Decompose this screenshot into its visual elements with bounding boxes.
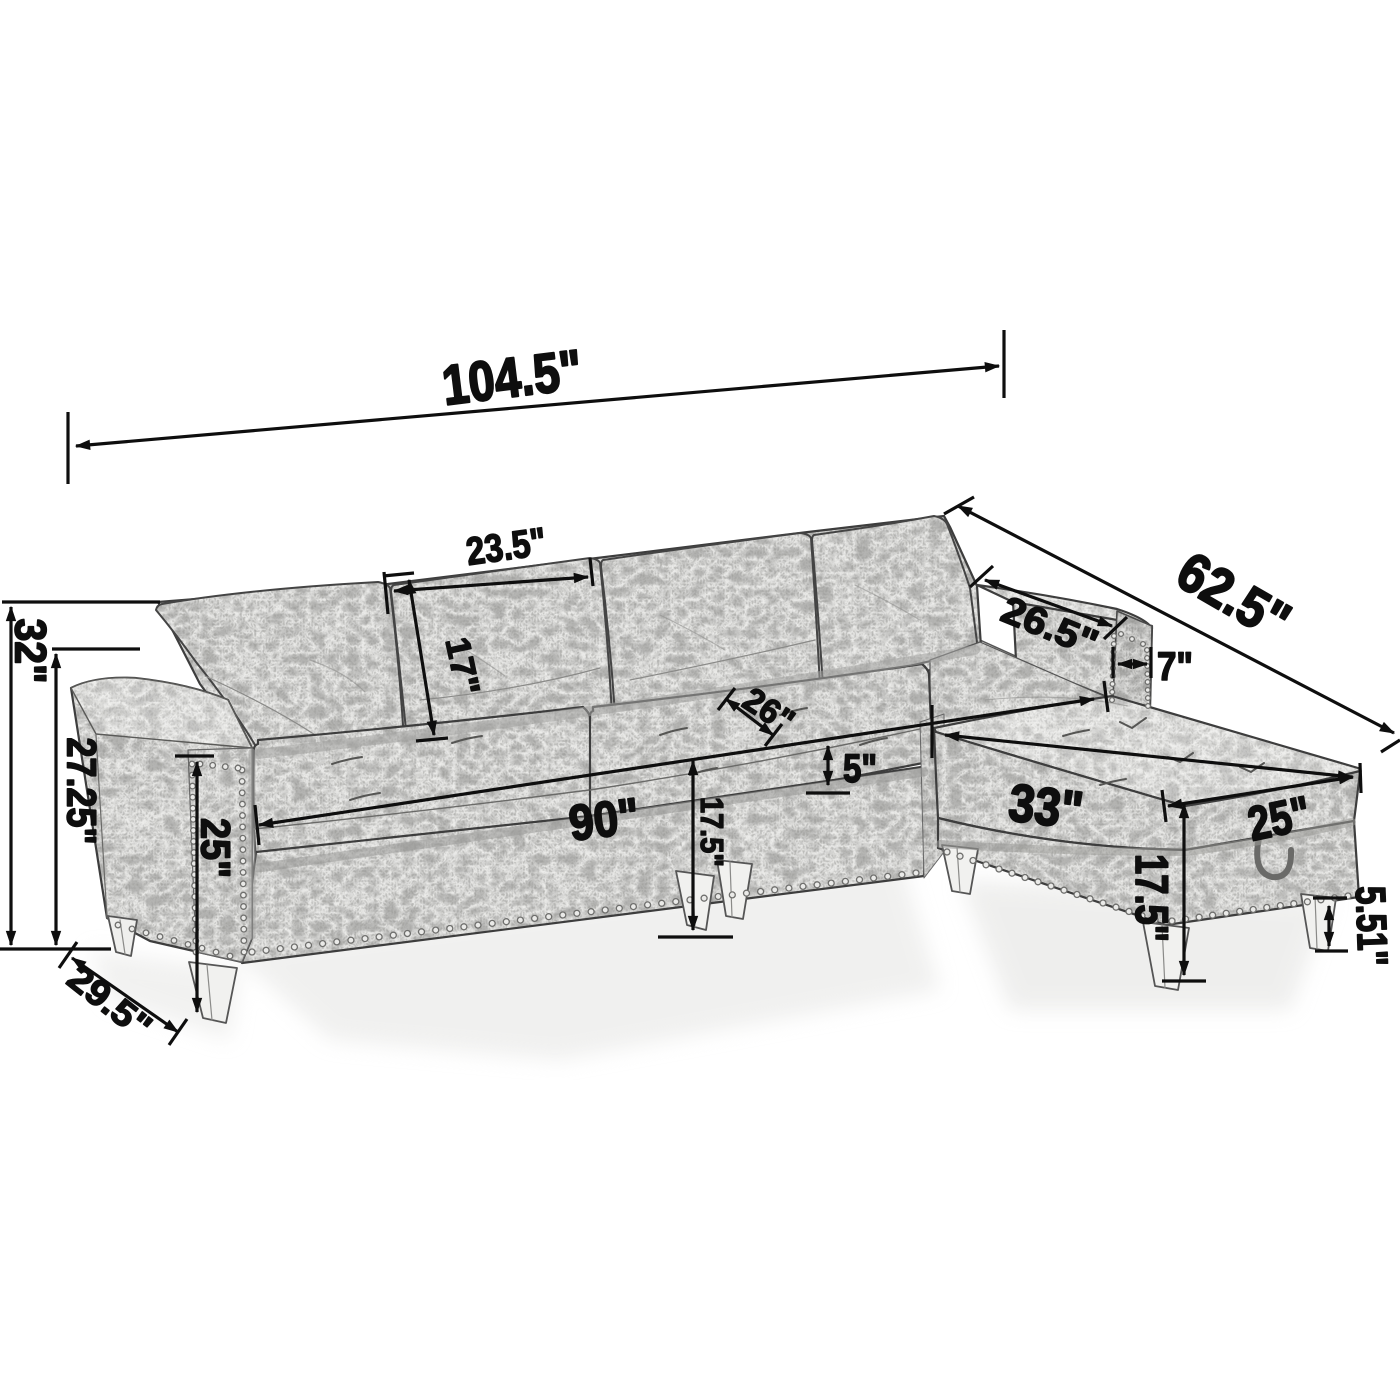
svg-text:90": 90" [566,787,642,851]
svg-text:17.5": 17.5" [1126,854,1178,942]
svg-text:7": 7" [1157,645,1193,689]
svg-text:33": 33" [1006,773,1087,841]
svg-text:32": 32" [6,619,55,684]
svg-text:5": 5" [843,747,877,791]
svg-text:27.25": 27.25" [59,738,105,845]
svg-text:25": 25" [193,818,239,878]
svg-text:17.5": 17.5" [694,797,730,867]
svg-text:5.51": 5.51" [1347,885,1397,967]
